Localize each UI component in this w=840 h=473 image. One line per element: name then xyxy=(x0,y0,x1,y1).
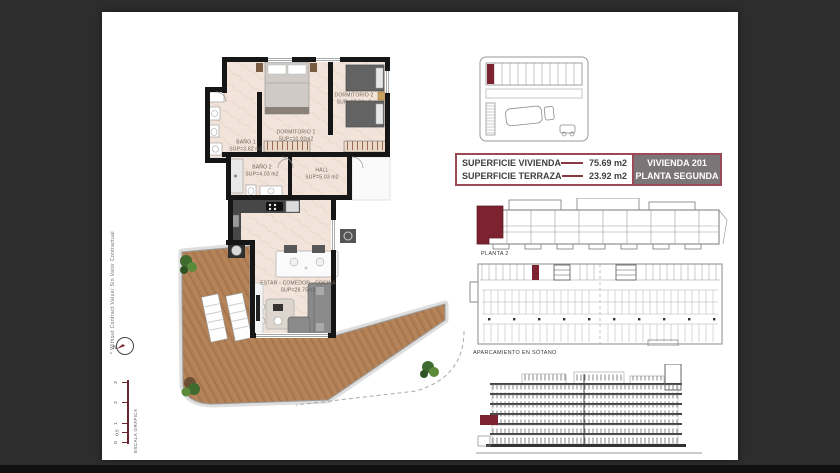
planta2-key-plan xyxy=(473,198,729,252)
planta2-caption: PLANTA 2 xyxy=(481,251,509,257)
highlighted-parking-stall xyxy=(532,265,539,280)
viewer-background: DORMITORIO 1SUP=10.92m2 DORMITORIO 2SUP=… xyxy=(0,0,840,473)
scale-tick xyxy=(122,402,128,403)
plan-sheet: DORMITORIO 1SUP=10.92m2 DORMITORIO 2SUP=… xyxy=(102,12,738,460)
surface-rows: SUPERFICIE VIVIENDA 75.69 m2 SUPERFICIE … xyxy=(457,155,632,184)
bottom-dark-strip xyxy=(0,465,840,473)
svg-text:N: N xyxy=(113,345,117,351)
disclaimer-text: * Without Contract Value/ Sin Valor Cont… xyxy=(110,204,116,354)
deck-planter-table xyxy=(228,243,245,258)
scale-tick-label: 1 xyxy=(113,422,118,425)
highlighted-unit-elevation xyxy=(480,415,498,425)
room-label-dormitorio-2: DORMITORIO 2SUP=10.04m2 xyxy=(335,92,374,106)
unit-floor: PLANTA SEGUNDA xyxy=(636,170,719,182)
surface-label: SUPERFICIE TERRAZA xyxy=(462,171,562,181)
dash-line xyxy=(561,162,583,164)
plant xyxy=(420,361,439,378)
room-label-estar-comedor-cocina: ESTAR - COMEDOR - COCINASUP=28.75m2 xyxy=(260,280,336,294)
surface-value: 75.69 m2 xyxy=(589,158,627,168)
car-icon xyxy=(560,125,575,136)
site-plan-diagram xyxy=(478,55,592,145)
scale-tick-label: 3 xyxy=(113,381,118,384)
dash-line xyxy=(562,175,583,177)
surface-value: 23.92 m2 xyxy=(589,171,627,181)
floor-plan-drawing xyxy=(176,55,476,423)
highlighted-unit-site xyxy=(487,64,494,84)
building-elevation xyxy=(476,364,702,458)
double-bed xyxy=(256,62,317,114)
scale-tick xyxy=(122,423,128,424)
north-arrow-icon: N xyxy=(112,334,136,358)
surface-row: SUPERFICIE TERRAZA 23.92 m2 xyxy=(462,170,627,183)
parking-caption: APARCAMIENTO EN SÓTANO xyxy=(473,350,557,356)
scale-tick xyxy=(122,442,128,443)
scale-tick-label: 0 xyxy=(113,441,118,444)
pool-shape xyxy=(505,104,555,126)
room-label-hall: HALLSUP=5.03 m2 xyxy=(305,167,338,181)
structural-columns xyxy=(488,318,715,320)
surface-label: SUPERFICIE VIVIENDA xyxy=(462,158,561,168)
scale-tick-label: 2 xyxy=(113,401,118,404)
scale-tick xyxy=(122,432,128,433)
scale-tick xyxy=(122,382,128,383)
room-label-bano-2: BAÑO 2SUP=4.03 m2 xyxy=(245,164,278,178)
scale-bar-title: ESCALA GRÁFICA xyxy=(133,395,138,453)
highlighted-unit-planta2 xyxy=(477,206,503,244)
scale-bar-line xyxy=(127,380,129,444)
surface-info-table: SUPERFICIE VIVIENDA 75.69 m2 SUPERFICIE … xyxy=(455,153,722,186)
unit-name: VIVIENDA 201 xyxy=(647,157,707,169)
scale-tick-label: 0.5 xyxy=(115,429,120,435)
parking-plan xyxy=(468,262,732,346)
room-label-bano-1: BAÑO 1SUP=3.82 m2 xyxy=(229,139,262,153)
room-label-dormitorio-1: DORMITORIO 1SUP=10.92m2 xyxy=(277,129,316,143)
unit-id-panel: VIVIENDA 201 PLANTA SEGUNDA xyxy=(632,155,720,184)
surface-row: SUPERFICIE VIVIENDA 75.69 m2 xyxy=(462,157,627,170)
ac-unit xyxy=(340,229,356,243)
